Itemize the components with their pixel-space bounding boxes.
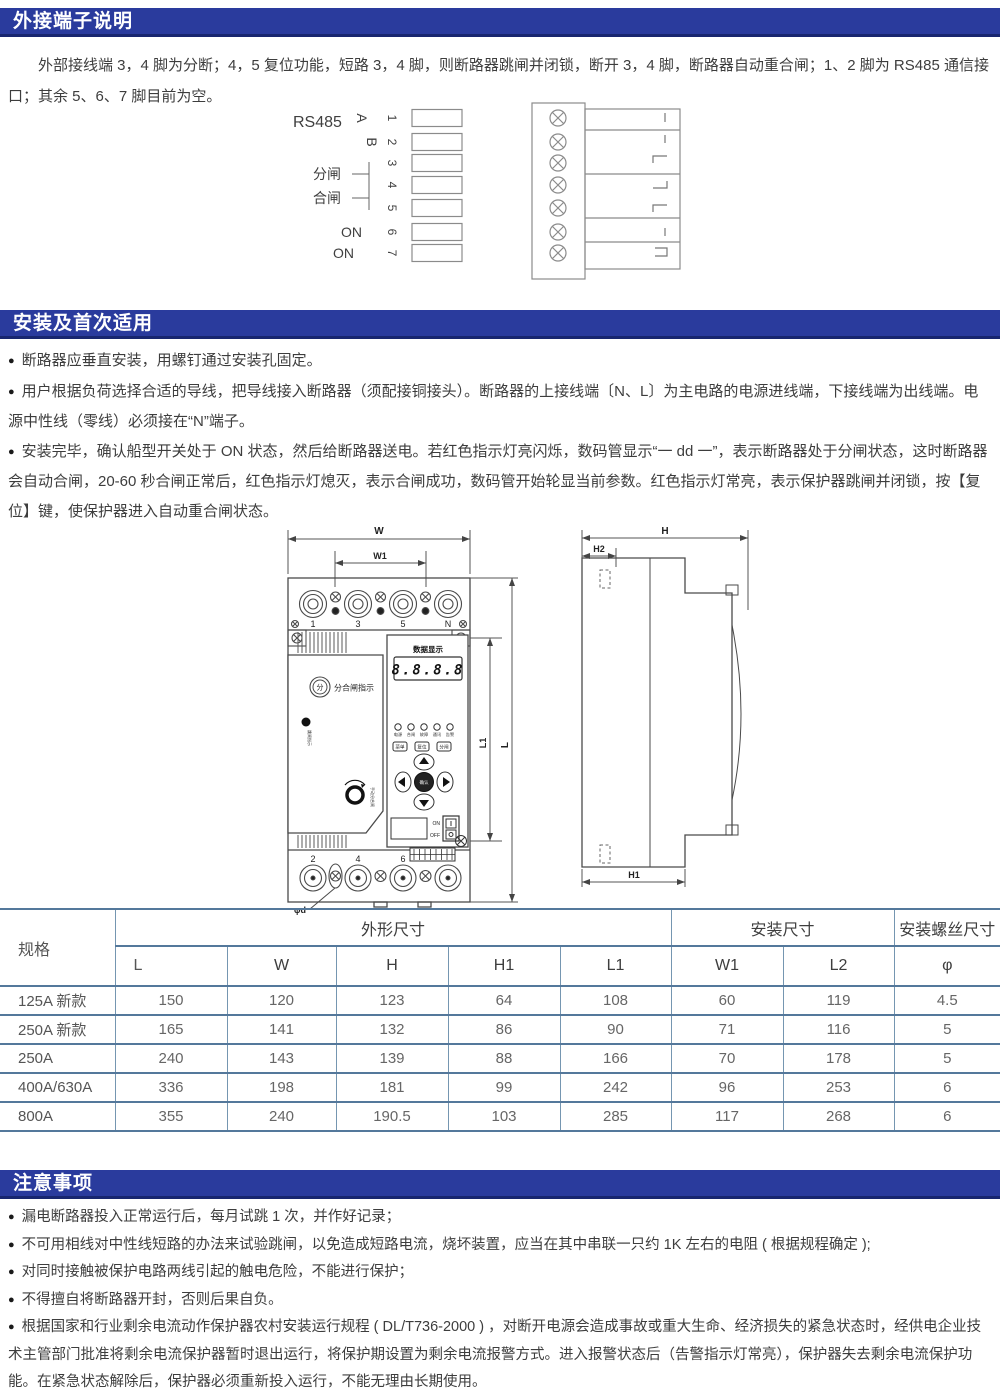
value-cell: 90 <box>560 1015 671 1044</box>
screw-terminal-strip <box>532 103 680 279</box>
terminal-1-label: 1 <box>310 619 315 629</box>
value-cell: 285 <box>560 1102 671 1131</box>
notes-bullet-2-text: 不可用相线对中性线短路的办法来试验跳闸，以免造成短路电流，烧坏装置，应当在其中串… <box>22 1237 871 1253</box>
dim-w1-label: W1 <box>373 551 387 561</box>
value-cell: 5 <box>894 1044 1000 1073</box>
col-header-w: W <box>227 946 336 986</box>
value-cell: 6 <box>894 1073 1000 1102</box>
table-row: 400A/630A 336 198 181 99 242 96 253 6 <box>0 1073 1000 1102</box>
spec-cell: 125A 新款 <box>0 986 115 1015</box>
trip-button-label: 分闸 <box>439 744 449 751</box>
install-bullet-2-text: 用户根据负荷选择合适的导线，把导线接入断路器（须配接铜接头）。断路器的上接线端〔… <box>8 383 978 431</box>
terminal-3-label: 3 <box>355 619 360 629</box>
col-header-h: H <box>336 946 448 986</box>
dim-h1-label: H1 <box>628 870 640 880</box>
left-cover: 分 分合闸指示 跳闸指示 手动分合闸 <box>288 655 383 833</box>
value-cell: 123 <box>336 986 448 1015</box>
bottom-terminals: 2 4 6 φd <box>294 854 461 915</box>
install-bullet-2: ●用户根据负荷选择合适的导线，把导线接入断路器（须配接铜接头）。断路器的上接线端… <box>8 377 992 437</box>
value-cell: 4.5 <box>894 986 1000 1015</box>
notes-bullet-3: ●对同时接触被保护电路两线引起的触电危险，不能进行保护； <box>8 1259 992 1287</box>
notes-bullet-2: ●不可用相线对中性线短路的办法来试验跳闸，以免造成短路电流，烧坏装置，应当在其中… <box>8 1232 992 1260</box>
switch-on-label: ON <box>433 821 441 827</box>
open-close-indicator-label: 分合闸指示 <box>334 683 374 693</box>
spec-cell: 800A <box>0 1102 115 1131</box>
spec-cell: 250A <box>0 1044 115 1073</box>
value-cell: 108 <box>560 986 671 1015</box>
col-header-l1: L1 <box>560 946 671 986</box>
value-cell: 190.5 <box>336 1102 448 1131</box>
col-header-w1: W1 <box>671 946 783 986</box>
col-group-screw: 安装螺丝尺寸 <box>894 909 1000 946</box>
col-header-phi: φ <box>894 946 1000 986</box>
bullet-icon: ● <box>8 355 15 367</box>
value-cell: 198 <box>227 1073 336 1102</box>
switch-off-label: OFF <box>430 833 440 839</box>
bullet-icon: ● <box>8 1266 15 1278</box>
display-value: 8.8.8.8 <box>391 663 464 679</box>
bullet-icon: ● <box>8 386 15 398</box>
table-row: 800A 355 240 190.5 103 285 117 268 6 <box>0 1102 1000 1131</box>
terminal-6-label: 6 <box>400 854 405 864</box>
section-title-notes: 注意事项 <box>0 1170 1000 1198</box>
open-close-indicator-glyph: 分 <box>317 683 324 692</box>
bottom-terminal-labels: 2 4 6 <box>310 854 405 864</box>
confirm-button-label: 确认 <box>420 779 429 786</box>
control-panel: 数据显示 8.8.8.8 电源 合闸 故障 通讯 告警 菜单 <box>387 635 468 861</box>
pin-2: 2 <box>385 139 399 146</box>
value-cell: 143 <box>227 1044 336 1073</box>
led-power-label: 电源 <box>394 731 403 738</box>
section-header-terminals: 外接端子说明 <box>0 8 1000 37</box>
value-cell: 88 <box>448 1044 560 1073</box>
value-cell: 5 <box>894 1015 1000 1044</box>
open-label: 分闸 <box>313 166 341 182</box>
open-close-bracket <box>352 162 369 210</box>
install-bullet-3: ●安装完毕，确认船型开关处于 ON 状态，然后给断路器送电。若红色指示灯亮闪烁，… <box>8 437 992 527</box>
value-cell: 120 <box>227 986 336 1015</box>
value-cell: 60 <box>671 986 783 1015</box>
bullet-icon: ● <box>8 446 15 458</box>
col-group-dims: 外形尺寸 <box>115 909 671 946</box>
pin-1: 1 <box>385 115 399 122</box>
terminal-diagram: RS485 A B 1 2 3 4 5 6 7 分闸 合闸 ON ON <box>285 100 715 288</box>
top-terminals <box>292 591 467 628</box>
aux-connector <box>410 848 455 861</box>
dim-h2-label: H2 <box>593 544 605 554</box>
on-label-6: ON <box>341 224 362 240</box>
value-cell: 116 <box>783 1015 894 1044</box>
pin-7: 7 <box>385 250 399 257</box>
section-title-install: 安装及首次适用 <box>0 310 1000 338</box>
terminal-4-label: 4 <box>355 854 360 864</box>
trip-indicator-label: 跳闸指示 <box>307 730 313 746</box>
table-row: 250A 240 143 139 88 166 70 178 5 <box>0 1044 1000 1073</box>
bullet-icon: ● <box>8 1294 15 1306</box>
section-title-terminals: 外接端子说明 <box>0 8 1000 36</box>
close-label: 合闸 <box>313 190 341 206</box>
dim-w-label: W <box>374 526 384 537</box>
value-cell: 119 <box>783 986 894 1015</box>
table-header-groups: 规格 外形尺寸 安装尺寸 安装螺丝尺寸 <box>0 909 1000 946</box>
pin-3: 3 <box>385 160 399 167</box>
value-cell: 139 <box>336 1044 448 1073</box>
dim-h-label: H <box>661 526 668 537</box>
value-cell: 355 <box>115 1102 227 1131</box>
reset-button-label: 复位 <box>417 744 427 751</box>
pin-6: 6 <box>385 229 399 236</box>
section-header-notes: 注意事项 <box>0 1170 1000 1199</box>
table-row: 250A 新款 165 141 132 86 90 71 116 5 <box>0 1015 1000 1044</box>
notes-bullet-1-text: 漏电断路器投入正常运行后，每月试跳 1 次，并作好记录； <box>22 1209 401 1225</box>
notes-bullet-4: ●不得擅自将断路器开封，否则后果自负。 <box>8 1287 992 1315</box>
notes-bullet-5-text: 根据国家和行业剩余电流动作保护器农村安装运行规程 ( DL/T736-2000 … <box>8 1319 981 1390</box>
terminal-n-label: N <box>445 619 452 629</box>
dimension-table: 规格 外形尺寸 安装尺寸 安装螺丝尺寸 L W H H1 L1 W1 L2 φ … <box>0 908 1000 1132</box>
led-comm-label: 通讯 <box>433 731 442 738</box>
install-bullet-1: ●断路器应垂直安装，用螺钉通过安装孔固定。 <box>8 346 992 377</box>
notes-bullet-4-text: 不得擅自将断路器开封，否则后果自负。 <box>22 1292 283 1308</box>
value-cell: 240 <box>227 1102 336 1131</box>
value-cell: 240 <box>115 1044 227 1073</box>
menu-button-label: 菜单 <box>395 744 405 751</box>
mount-hole-dashed <box>600 570 610 863</box>
pin-b-label: B <box>364 137 380 146</box>
pin-5: 5 <box>385 205 399 212</box>
col-header-spec: 规格 <box>0 909 115 986</box>
col-group-mount: 安装尺寸 <box>671 909 894 946</box>
terminal-5-label: 5 <box>400 619 405 629</box>
table-header-cols: L W H H1 L1 W1 L2 φ <box>0 946 1000 986</box>
pin-labels: RS485 A B 1 2 3 4 5 6 7 分闸 合闸 ON ON <box>293 113 399 261</box>
on-label-7: ON <box>333 245 354 261</box>
value-cell: 178 <box>783 1044 894 1073</box>
pin-4: 4 <box>385 182 399 189</box>
spec-cell: 400A/630A <box>0 1073 115 1102</box>
value-cell: 150 <box>115 986 227 1015</box>
dim-l-label: L <box>500 742 511 748</box>
contact-symbols <box>653 113 667 256</box>
value-cell: 71 <box>671 1015 783 1044</box>
install-bullet-list: ●断路器应垂直安装，用螺钉通过安装孔固定。 ●用户根据负荷选择合适的导线，把导线… <box>8 346 992 526</box>
install-bullet-1-text: 断路器应垂直安装，用螺钉通过安装孔固定。 <box>22 352 322 369</box>
display-title: 数据显示 <box>413 644 443 654</box>
col-header-l: L <box>115 946 227 986</box>
led-alarm-label: 告警 <box>446 731 455 738</box>
bullet-icon: ● <box>8 1211 15 1223</box>
led-fault-label: 故障 <box>420 731 428 738</box>
value-cell: 64 <box>448 986 560 1015</box>
bullet-icon: ● <box>8 1239 15 1251</box>
side-view: H H2 H1 <box>582 526 748 887</box>
value-cell: 117 <box>671 1102 783 1131</box>
notes-bullet-3-text: 对同时接触被保护电路两线引起的触电危险，不能进行保护； <box>22 1264 414 1280</box>
value-cell: 336 <box>115 1073 227 1102</box>
value-cell: 86 <box>448 1015 560 1044</box>
value-cell: 70 <box>671 1044 783 1073</box>
bullet-icon: ● <box>8 1321 15 1333</box>
value-cell: 96 <box>671 1073 783 1102</box>
table-row: 125A 新款 150 120 123 64 108 60 119 4.5 <box>0 986 1000 1015</box>
value-cell: 253 <box>783 1073 894 1102</box>
value-cell: 166 <box>560 1044 671 1073</box>
value-cell: 132 <box>336 1015 448 1044</box>
value-cell: 165 <box>115 1015 227 1044</box>
notes-bullet-1: ●漏电断路器投入正常运行后，每月试跳 1 次，并作好记录； <box>8 1204 992 1232</box>
notes-bullet-5: ●根据国家和行业剩余电流动作保护器农村安装运行规程 ( DL/T736-2000… <box>8 1314 992 1396</box>
top-terminal-labels: 1 3 5 N <box>310 619 451 629</box>
value-cell: 99 <box>448 1073 560 1102</box>
manual-page: 外接端子说明 外部接线端 3，4 脚为分断；4，5 复位功能，短路 3，4 脚，… <box>0 0 1000 1396</box>
pin-block <box>412 110 462 262</box>
value-cell: 6 <box>894 1102 1000 1131</box>
value-cell: 242 <box>560 1073 671 1102</box>
notes-bullet-list: ●漏电断路器投入正常运行后，每月试跳 1 次，并作好记录； ●不可用相线对中性线… <box>8 1204 992 1396</box>
value-cell: 268 <box>783 1102 894 1131</box>
dimension-drawings: W W1 <box>250 515 770 915</box>
col-header-h1: H1 <box>448 946 560 986</box>
side-profile <box>582 558 741 867</box>
pin-a-label: A <box>354 113 370 123</box>
front-view: W W1 <box>288 526 518 915</box>
led-close-label: 合闸 <box>407 731 415 738</box>
section-header-install: 安装及首次适用 <box>0 310 1000 339</box>
spec-cell: 250A 新款 <box>0 1015 115 1044</box>
dim-l1-label: L1 <box>478 738 488 749</box>
screw-symbols <box>550 110 566 261</box>
value-cell: 181 <box>336 1073 448 1102</box>
value-cell: 141 <box>227 1015 336 1044</box>
rs485-label: RS485 <box>293 114 342 131</box>
col-header-l2: L2 <box>783 946 894 986</box>
terminal-2-label: 2 <box>310 854 315 864</box>
value-cell: 103 <box>448 1102 560 1131</box>
trip-indicator-led <box>302 718 311 727</box>
install-bullet-3-text: 安装完毕，确认船型开关处于 ON 状态，然后给断路器送电。若红色指示灯亮闪烁，数… <box>8 443 988 520</box>
manual-knob-label: 手动分合闸 <box>370 787 376 807</box>
